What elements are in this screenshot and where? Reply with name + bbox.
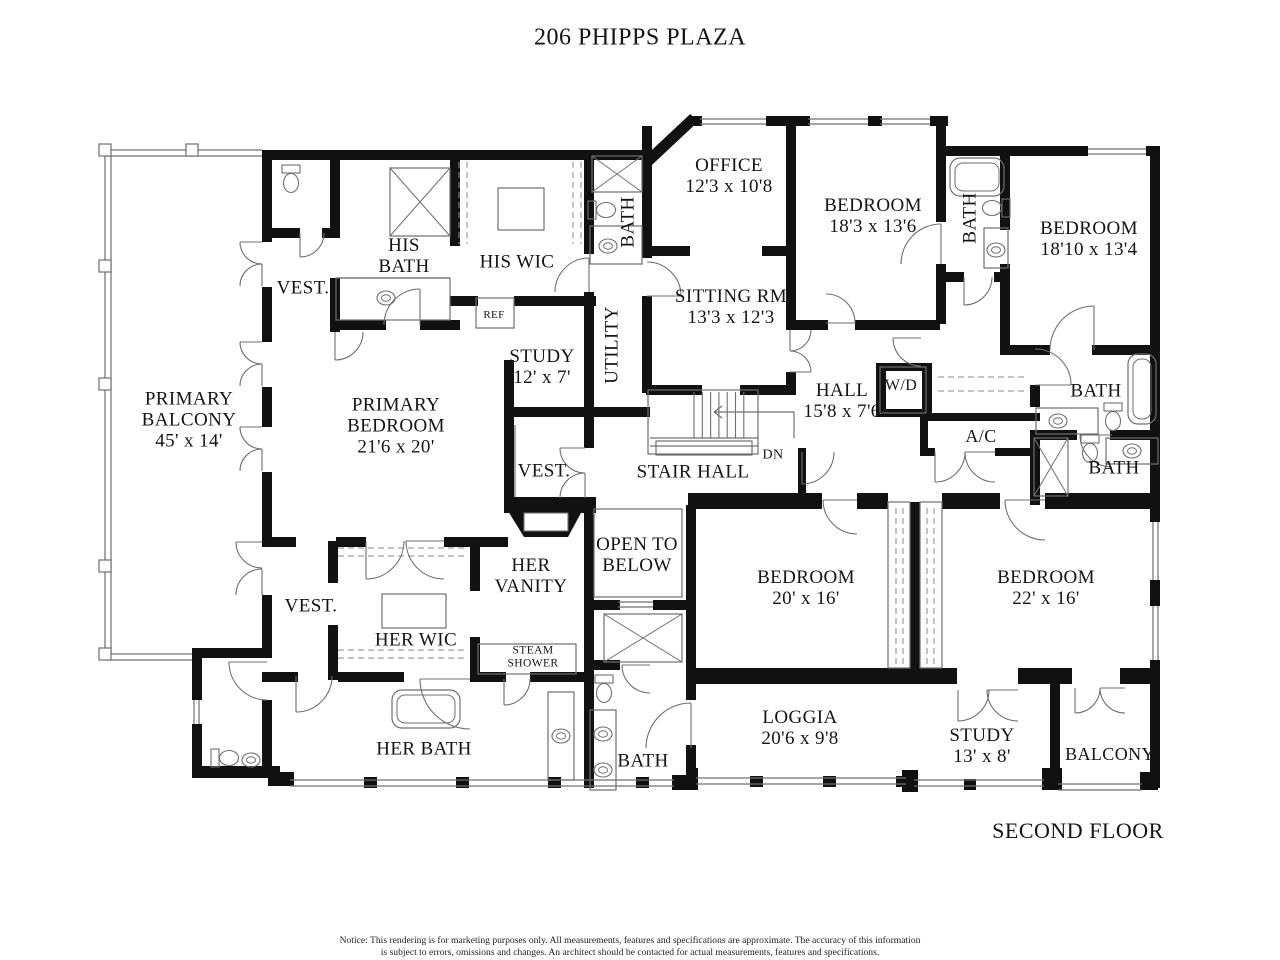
room-label-sitting-rm: SITTING RM13'3 x 12'3 — [675, 287, 787, 329]
room-label-stair-hall: STAIR HALL — [637, 463, 750, 484]
plan-title: 206 PHIPPS PLAZA — [534, 25, 746, 52]
room-label-bedroom-ne: BEDROOM18'3 x 13'6 — [824, 196, 922, 238]
room-label-steam-shower: STEAMSHOWER — [508, 644, 559, 669]
room-label-loggia: LOGGIA20'6 x 9'8 — [761, 708, 838, 750]
room-label-hall: HALL15'8 x 7'6 — [803, 381, 880, 423]
room-label-bath-e2: BATH — [1088, 459, 1139, 480]
room-label-her-bath: HER BATH — [376, 740, 472, 761]
room-label-study-upper: STUDY12' x 7' — [509, 347, 574, 389]
room-label-her-vanity: HERVANITY — [495, 556, 568, 598]
room-label-ref: REF — [483, 309, 504, 321]
notice-line-1: Notice: This rendering is for marketing … — [250, 935, 1010, 947]
room-label-utility: UTILITY — [603, 306, 624, 384]
room-label-his-bath: HISBATH — [378, 236, 429, 278]
room-label-bath-ne: BATH — [961, 192, 982, 243]
room-label-office: OFFICE12'3 x 10'8 — [685, 156, 772, 198]
room-label-open-below: OPEN TOBELOW — [596, 535, 678, 577]
room-label-primary-balcony: PRIMARYBALCONY45' x 14' — [142, 390, 237, 453]
room-label-wd: W/D — [885, 377, 917, 395]
stairs-layer — [694, 392, 744, 438]
room-label-vest-nw: VEST. — [277, 279, 330, 300]
room-label-dn: DN — [762, 447, 783, 462]
toilet-icon — [1104, 403, 1122, 431]
toilet-icon — [282, 165, 300, 193]
room-label-vest-mid: VEST. — [518, 462, 571, 483]
notice-line-2: is subject to errors, omissions and chan… — [250, 947, 1010, 959]
room-label-study-s: STUDY13' x 8' — [949, 726, 1014, 768]
room-label-vest-sw: VEST. — [285, 597, 338, 618]
room-label-bedroom-e: BEDROOM18'10 x 13'4 — [1040, 219, 1138, 261]
toilet-icon — [211, 749, 239, 767]
room-label-his-wic: HIS WIC — [480, 253, 555, 274]
room-label-bath-s: BATH — [617, 752, 668, 773]
room-label-bath-e1: BATH — [1070, 382, 1121, 403]
room-label-bedroom-s1: BEDROOM20' x 16' — [757, 568, 855, 610]
toilet-icon — [595, 675, 613, 703]
room-label-balcony-se: BALCONY — [1065, 745, 1155, 765]
room-label-her-wic: HER WIC — [375, 631, 457, 652]
room-label-bath-strip: BATH — [619, 196, 640, 247]
room-label-bedroom-s2: BEDROOM22' x 16' — [997, 568, 1095, 610]
room-label-primary-bedroom: PRIMARYBEDROOM21'6 x 20' — [347, 396, 445, 459]
floorplan-page: 206 PHIPPS PLAZA PRIMARYBALCONY45' x 14'… — [0, 0, 1280, 960]
floor-title: SECOND FLOOR — [992, 818, 1164, 844]
room-label-ac: A/C — [965, 427, 996, 447]
notice-text: Notice: This rendering is for marketing … — [250, 935, 1010, 959]
